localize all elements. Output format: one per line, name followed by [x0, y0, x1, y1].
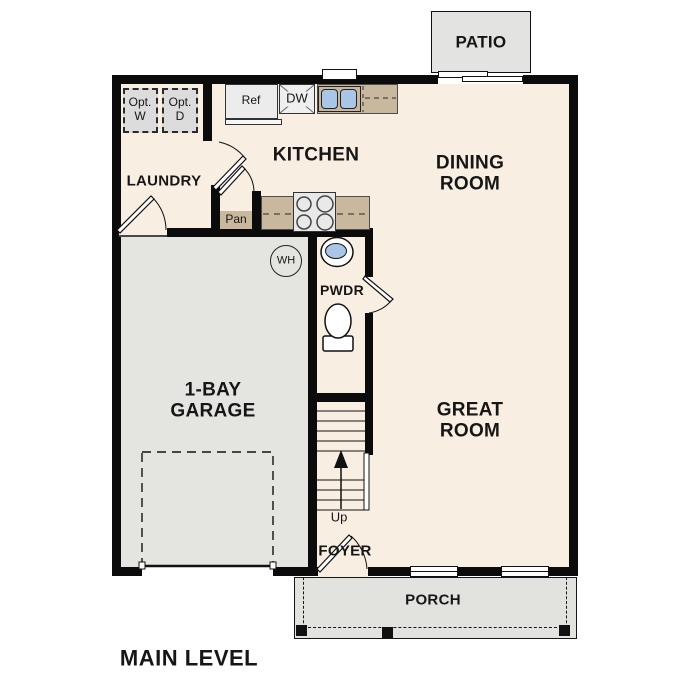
great-room-window-left — [410, 566, 458, 577]
wall-top-left-segment — [112, 75, 438, 84]
wall-pwdr-right-lower — [365, 313, 373, 455]
sink-basin-left — [321, 89, 338, 109]
wall-bottom-seg4 — [458, 567, 501, 576]
patio-slider-panel-front — [462, 76, 523, 82]
wall-pantry-right-stub — [252, 191, 261, 229]
wall-bottom-seg5 — [549, 567, 578, 576]
optional-washer-box — [123, 88, 158, 133]
garage-floor — [121, 237, 308, 567]
wall-pwdr-right-upper — [365, 228, 373, 277]
porch-inner-dashed — [303, 577, 567, 628]
pantry-shelf — [220, 211, 252, 229]
great-room-window-right — [501, 566, 549, 577]
refrigerator — [225, 84, 278, 119]
stove — [293, 192, 336, 232]
dishwasher — [279, 84, 315, 114]
kitchen-window — [322, 69, 357, 80]
water-heater — [270, 245, 302, 277]
refrigerator-front — [225, 119, 282, 125]
wall-laundry-kitchen — [203, 84, 212, 141]
optional-dryer-box — [162, 88, 198, 133]
porch-post-left — [296, 625, 307, 636]
wall-laundry-garage-left — [112, 228, 119, 237]
porch-post-middle — [382, 627, 393, 638]
patio-area — [431, 11, 531, 73]
wall-right — [569, 75, 578, 576]
wall-left — [112, 75, 121, 576]
wall-bottom-seg3 — [368, 567, 410, 576]
floor-plan: PATIO KITCHEN DINING ROOM LAUNDRY GREAT … — [0, 0, 687, 687]
main-level-title: MAIN LEVEL — [120, 647, 258, 672]
foyer-threshold — [318, 567, 368, 577]
laundry-door-opening — [119, 228, 167, 237]
wall-bottom-seg2 — [273, 567, 318, 576]
wall-pwdr-bottom — [308, 393, 373, 402]
wall-pantry-left-stub — [211, 185, 220, 229]
wall-bottom-seg1 — [112, 567, 142, 576]
porch-post-right — [559, 625, 570, 636]
sink-basin-right — [340, 89, 357, 109]
